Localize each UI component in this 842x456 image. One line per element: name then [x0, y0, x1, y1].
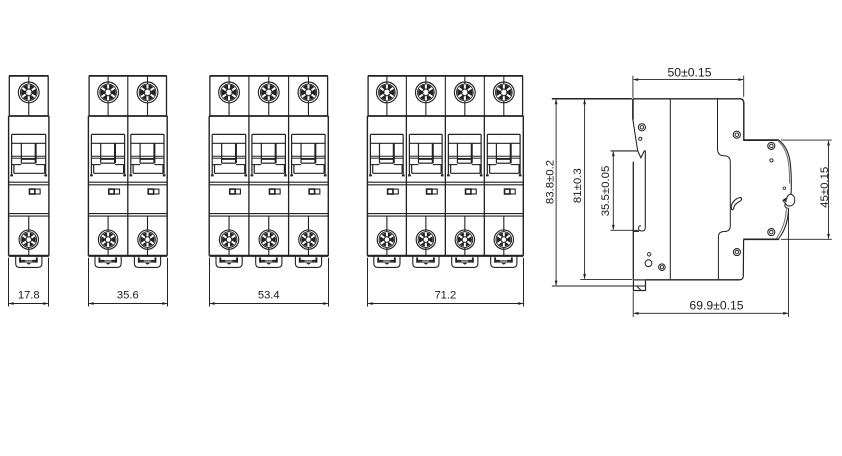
svg-text:71.2: 71.2: [434, 290, 456, 302]
svg-text:83.8±0.2: 83.8±0.2: [545, 160, 557, 204]
svg-text:35.5±0.05: 35.5±0.05: [600, 166, 612, 217]
svg-text:50±0.15: 50±0.15: [668, 65, 712, 79]
svg-text:81±0.3: 81±0.3: [572, 168, 584, 203]
svg-text:53.4: 53.4: [258, 290, 280, 302]
svg-text:69.9±0.15: 69.9±0.15: [689, 299, 743, 313]
svg-text:45±0.15: 45±0.15: [819, 167, 831, 208]
svg-text:17.8: 17.8: [18, 290, 40, 302]
svg-text:35.6: 35.6: [117, 290, 139, 302]
